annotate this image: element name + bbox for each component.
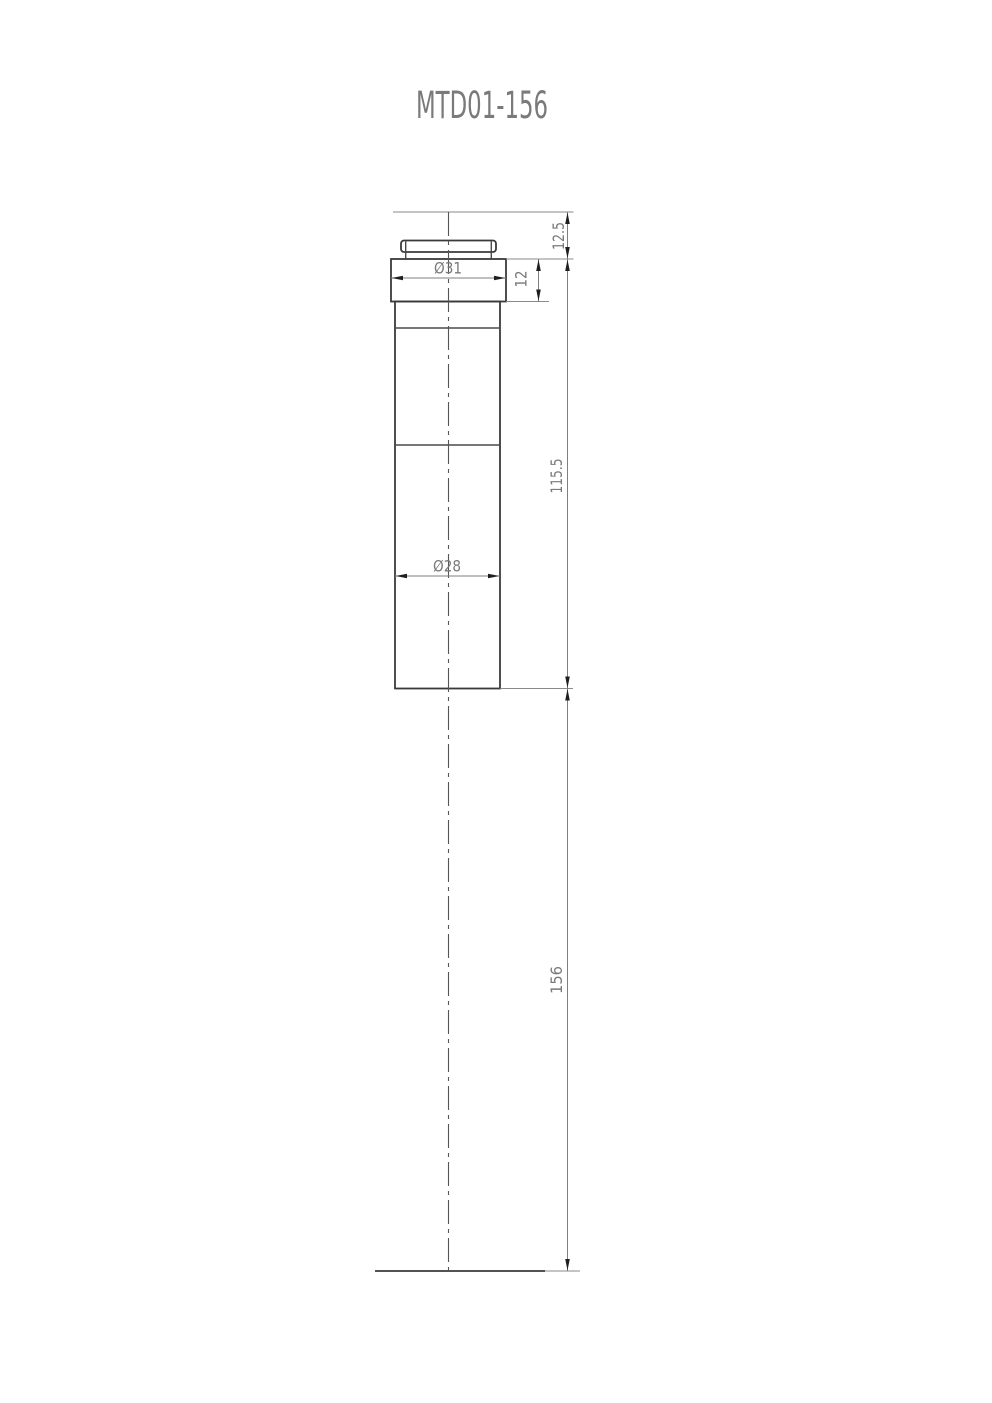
arrow-right-icon (488, 574, 500, 579)
arrow-down-icon (565, 677, 570, 689)
dim-value-top-offset: 12.5 (549, 222, 568, 250)
dim-value-flange-diameter: Ø31 (434, 259, 462, 278)
dim-value-overall-length: 156 (547, 966, 566, 994)
arrow-down-icon (536, 290, 541, 302)
drawing-sheet: MTD01-156 (0, 0, 992, 1403)
arrow-up-icon (565, 260, 570, 272)
arrow-up-icon (536, 260, 541, 272)
technical-drawing: MTD01-156 (0, 0, 992, 1403)
part-geometry (375, 212, 580, 1271)
drawing-title: MTD01-156 (416, 84, 548, 127)
dimension-top-offset: 12.5 (549, 212, 570, 259)
dim-value-body-diameter: Ø28 (433, 557, 461, 576)
body-outline (395, 302, 500, 689)
arrow-left-icon (396, 574, 408, 579)
arrow-down-icon (565, 1259, 570, 1271)
dimension-body-length: 115.5 (547, 259, 570, 689)
dimension-overall-length: 156 (547, 689, 570, 1272)
dimension-flange-thickness: 12 (512, 259, 541, 302)
dim-value-flange-thickness: 12 (512, 271, 531, 288)
dim-value-body-length: 115.5 (547, 459, 566, 494)
arrow-up-icon (565, 689, 570, 701)
arrow-right-icon (494, 276, 506, 281)
dimension-body-diameter: Ø28 (395, 557, 500, 579)
arrow-left-icon (392, 276, 404, 281)
dimension-flange-diameter: Ø31 (391, 259, 506, 281)
